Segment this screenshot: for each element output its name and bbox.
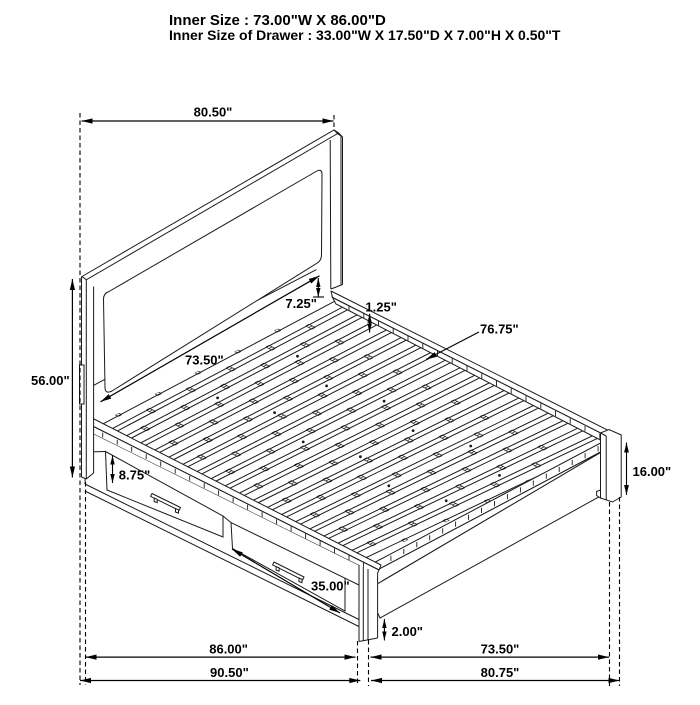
- svg-text:86.00": 86.00": [209, 642, 248, 657]
- svg-text:16.00": 16.00": [633, 464, 672, 479]
- svg-text:7.25": 7.25": [285, 296, 316, 311]
- svg-text:1.25": 1.25": [365, 300, 396, 315]
- svg-text:76.75": 76.75": [480, 322, 519, 337]
- svg-text:8.75": 8.75": [119, 468, 150, 483]
- svg-text:90.50": 90.50": [210, 665, 249, 680]
- svg-text:80.50": 80.50": [194, 105, 233, 120]
- svg-text:35.00": 35.00": [311, 579, 350, 594]
- svg-text:2.00": 2.00": [392, 624, 423, 639]
- svg-text:56.00": 56.00": [31, 373, 70, 388]
- svg-text:73.50": 73.50": [481, 642, 520, 657]
- svg-text:73.50": 73.50": [185, 353, 224, 368]
- svg-text:Inner Size of Drawer : 33.00"W: Inner Size of Drawer : 33.00"W X 17.50"D…: [169, 27, 561, 43]
- svg-text:80.75": 80.75": [481, 665, 520, 680]
